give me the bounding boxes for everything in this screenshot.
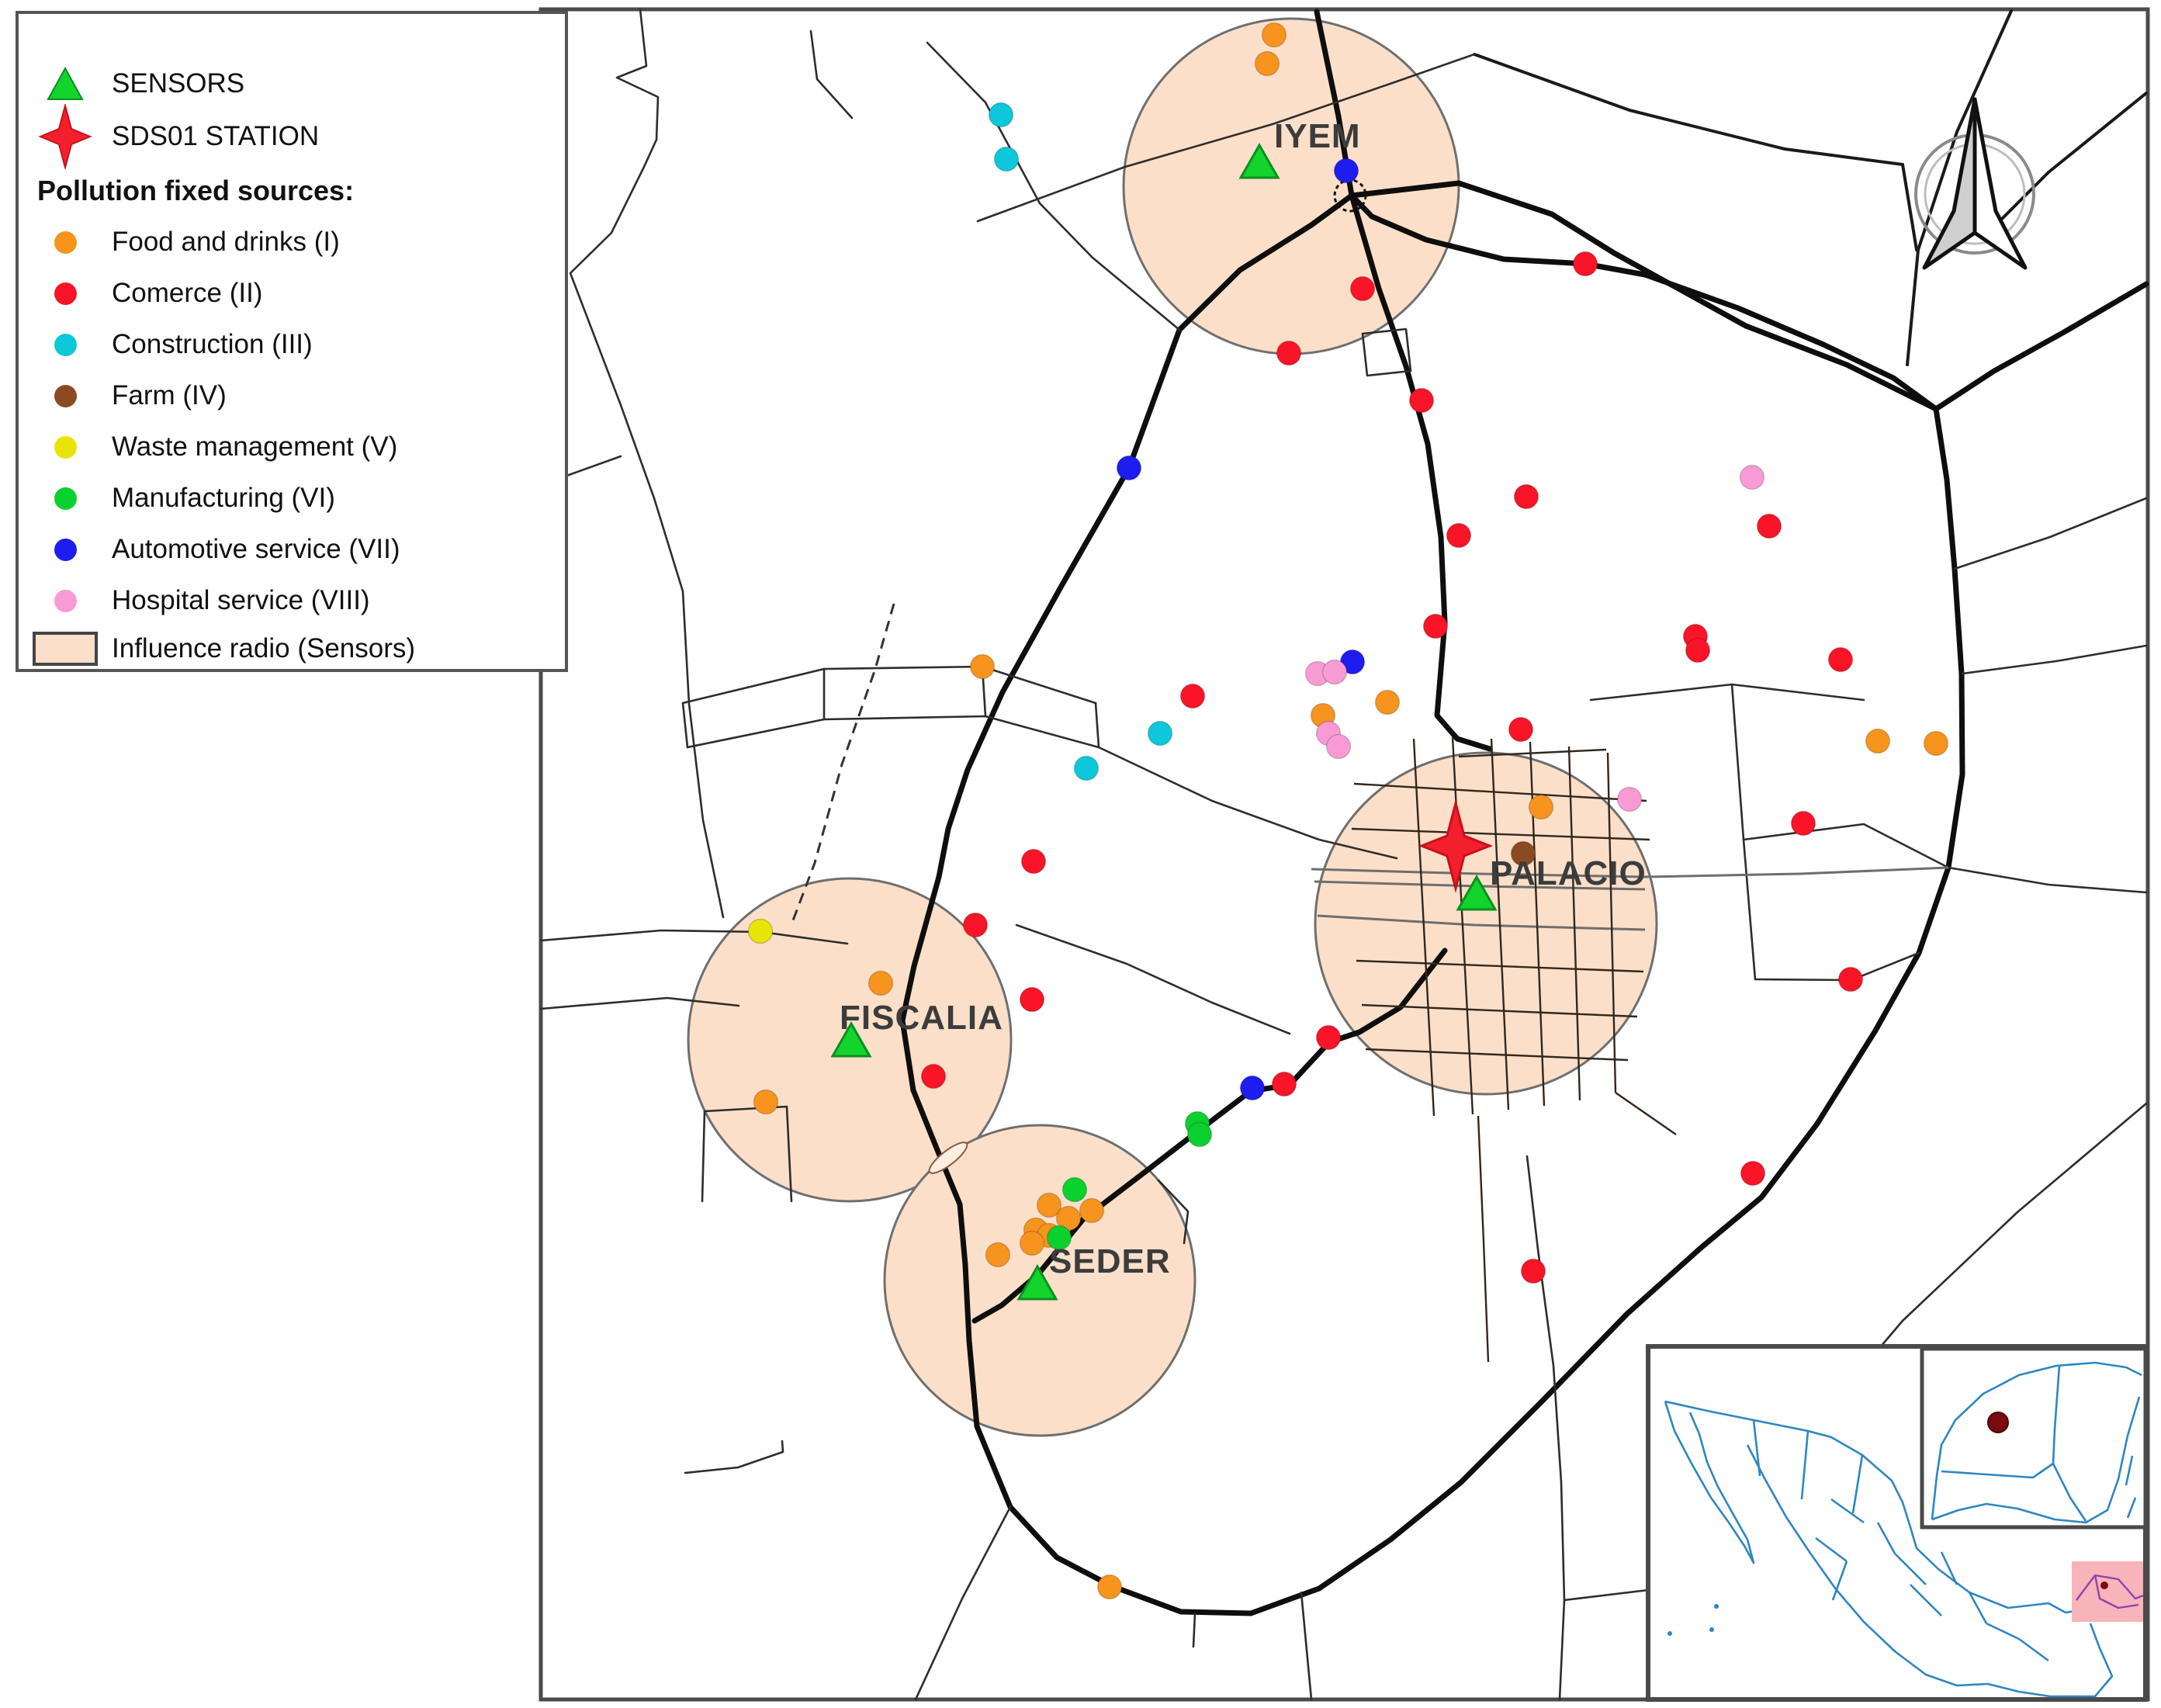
legend-row-manufacturing: Manufacturing (VI) <box>19 473 565 523</box>
mexico-locator-inset <box>1648 1346 2145 1699</box>
source-dot-automotive <box>1117 456 1141 480</box>
source-dot-comerce <box>1509 718 1533 742</box>
legend-sources-heading: Pollution fixed sources: <box>19 175 354 207</box>
legend-row-food: Food and drinks (I) <box>19 217 565 267</box>
source-dot-comerce <box>1447 524 1471 548</box>
legend-row-hospital: Hospital service (VIII) <box>19 576 565 625</box>
source-dot-comerce <box>1273 1072 1297 1097</box>
source-dot-manufacturing <box>1188 1123 1212 1147</box>
source-dot-comerce <box>1758 514 1782 539</box>
source-dot-comerce <box>1686 639 1710 663</box>
source-dot-food <box>971 655 995 679</box>
source-dot-hospital <box>1323 660 1347 684</box>
legend-food-label: Food and drinks (I) <box>112 227 340 258</box>
source-dot-construction <box>989 103 1013 127</box>
legend-farm-label: Farm (IV) <box>112 380 227 411</box>
source-dot-construction <box>1075 757 1099 781</box>
source-dot-food <box>754 1090 778 1114</box>
source-dot-food <box>1866 729 1890 754</box>
legend-row-waste: Waste management (V) <box>19 422 565 472</box>
legend-manufacturing-label: Manufacturing (VI) <box>112 483 335 514</box>
source-dot-waste <box>749 920 773 944</box>
legend-row-construction: Construction (III) <box>19 320 565 369</box>
map-label-iyem: IYEM <box>1274 117 1361 155</box>
source-dot-comerce <box>1181 684 1205 708</box>
source-dot-comerce <box>1741 1162 1765 1186</box>
legend-row-automotive: Automotive service (VII) <box>19 525 565 574</box>
source-dot-comerce <box>1574 252 1598 276</box>
source-dot-hospital <box>1618 788 1642 812</box>
map-label-palacio: PALACIO <box>1490 854 1647 892</box>
map-label-fiscalia: FISCALIA <box>840 999 1003 1037</box>
source-dot-comerce <box>1351 277 1375 301</box>
inset-study-area-dot <box>1988 1412 2008 1433</box>
legend-construction-label: Construction (III) <box>112 329 313 360</box>
legend-comerce-label: Comerce (II) <box>112 278 262 309</box>
source-dot-comerce <box>964 913 988 937</box>
influence-circle-palacio <box>1315 753 1657 1094</box>
source-dot-comerce <box>1022 850 1046 874</box>
influence-swatch-icon <box>33 632 98 666</box>
legend-row-sensors: SENSORS <box>19 59 565 109</box>
source-dot-food <box>1080 1199 1104 1223</box>
source-dot-hospital <box>1740 466 1764 490</box>
source-dot-food <box>1376 691 1400 715</box>
source-dot-food <box>1262 23 1287 47</box>
source-dot-construction <box>1148 722 1172 746</box>
source-dot-food <box>986 1243 1010 1267</box>
source-dot-manufacturing <box>1063 1178 1087 1202</box>
source-dot-comerce <box>1410 389 1434 413</box>
source-dot-food <box>1924 732 1948 756</box>
legend-row-farm: Farm (IV) <box>19 371 565 421</box>
source-dot-food <box>869 972 893 996</box>
source-dot-comerce <box>1317 1026 1341 1050</box>
legend-automotive-label: Automotive service (VII) <box>112 534 400 565</box>
legend-influence-label: Influence radio (Sensors) <box>112 633 415 664</box>
legend-sensors-label: SENSORS <box>112 68 244 99</box>
hospital-dot-icon <box>54 590 77 612</box>
source-dot-comerce <box>1277 341 1301 366</box>
source-dot-food <box>1020 1232 1044 1256</box>
waste-dot-icon <box>54 436 77 459</box>
source-dot-comerce <box>922 1065 946 1089</box>
manufacturing-dot-icon <box>54 487 77 510</box>
inset-mini-dot <box>2100 1582 2108 1589</box>
food-dot-icon <box>54 231 77 254</box>
automotive-dot-icon <box>54 539 77 561</box>
legend-hospital-label: Hospital service (VIII) <box>112 585 370 616</box>
inset-subpanel <box>1922 1349 2145 1527</box>
source-dot-comerce <box>1020 988 1044 1012</box>
farm-dot-icon <box>54 385 77 407</box>
construction-dot-icon <box>54 334 77 356</box>
source-dot-comerce <box>1515 485 1539 509</box>
legend-waste-label: Waste management (V) <box>112 431 397 463</box>
figure-page: IYEMPALACIOFISCALIASEDER <box>0 0 2161 1708</box>
source-dot-comerce <box>1522 1259 1546 1284</box>
source-dot-food <box>1529 795 1553 819</box>
source-dot-construction <box>995 147 1019 171</box>
source-dot-automotive <box>1241 1076 1265 1100</box>
source-dot-comerce <box>1792 812 1816 836</box>
legend-row-station: SDS01 STATION <box>19 112 565 161</box>
source-dot-comerce <box>1829 648 1853 672</box>
sensor-triangle-icon <box>19 65 112 102</box>
source-dot-food <box>1098 1575 1122 1599</box>
legend-row-influence: Influence radio (Sensors) <box>19 624 565 674</box>
legend-station-label: SDS01 STATION <box>112 121 319 152</box>
map-label-seder: SEDER <box>1049 1242 1171 1280</box>
station-star-icon <box>19 104 112 169</box>
legend: SENSORS SDS01 STATION Pollution fixed so… <box>16 11 568 672</box>
source-dot-hospital <box>1327 735 1351 759</box>
source-dot-comerce <box>1424 615 1448 639</box>
comerce-dot-icon <box>54 282 77 305</box>
source-dot-comerce <box>1839 968 1863 992</box>
source-dot-food <box>1255 52 1280 76</box>
source-dot-automotive <box>1335 159 1359 183</box>
legend-row-heading: Pollution fixed sources: <box>19 166 565 216</box>
legend-row-comerce: Comerce (II) <box>19 268 565 318</box>
